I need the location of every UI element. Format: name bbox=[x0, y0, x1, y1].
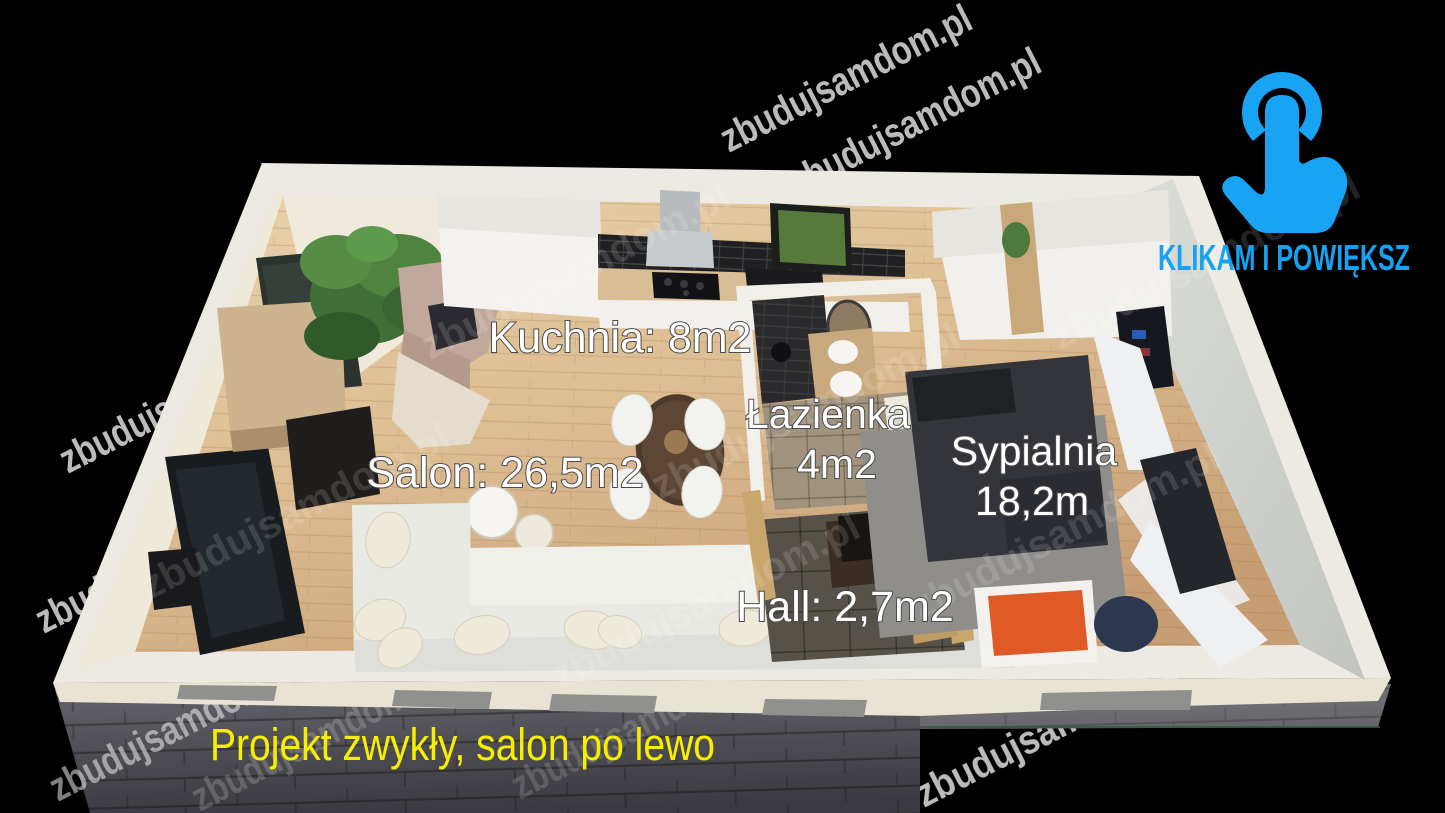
svg-text:Sypialnia: Sypialnia bbox=[951, 428, 1118, 474]
svg-text:Salon: 26,5m2: Salon: 26,5m2 bbox=[366, 449, 643, 497]
svg-text:18,2m: 18,2m bbox=[975, 478, 1089, 524]
svg-text:Projekt zwykły, salon po lewo: Projekt zwykły, salon po lewo bbox=[210, 719, 715, 770]
svg-text:Hall: 2,7m2: Hall: 2,7m2 bbox=[736, 583, 953, 631]
svg-text:4m2: 4m2 bbox=[797, 441, 877, 487]
svg-text:Kuchnia: 8m2: Kuchnia: 8m2 bbox=[489, 314, 752, 362]
svg-text:Łazienka: Łazienka bbox=[746, 391, 910, 437]
svg-text:KLIKAM I POWIĘKSZ: KLIKAM I POWIĘKSZ bbox=[1158, 237, 1410, 278]
